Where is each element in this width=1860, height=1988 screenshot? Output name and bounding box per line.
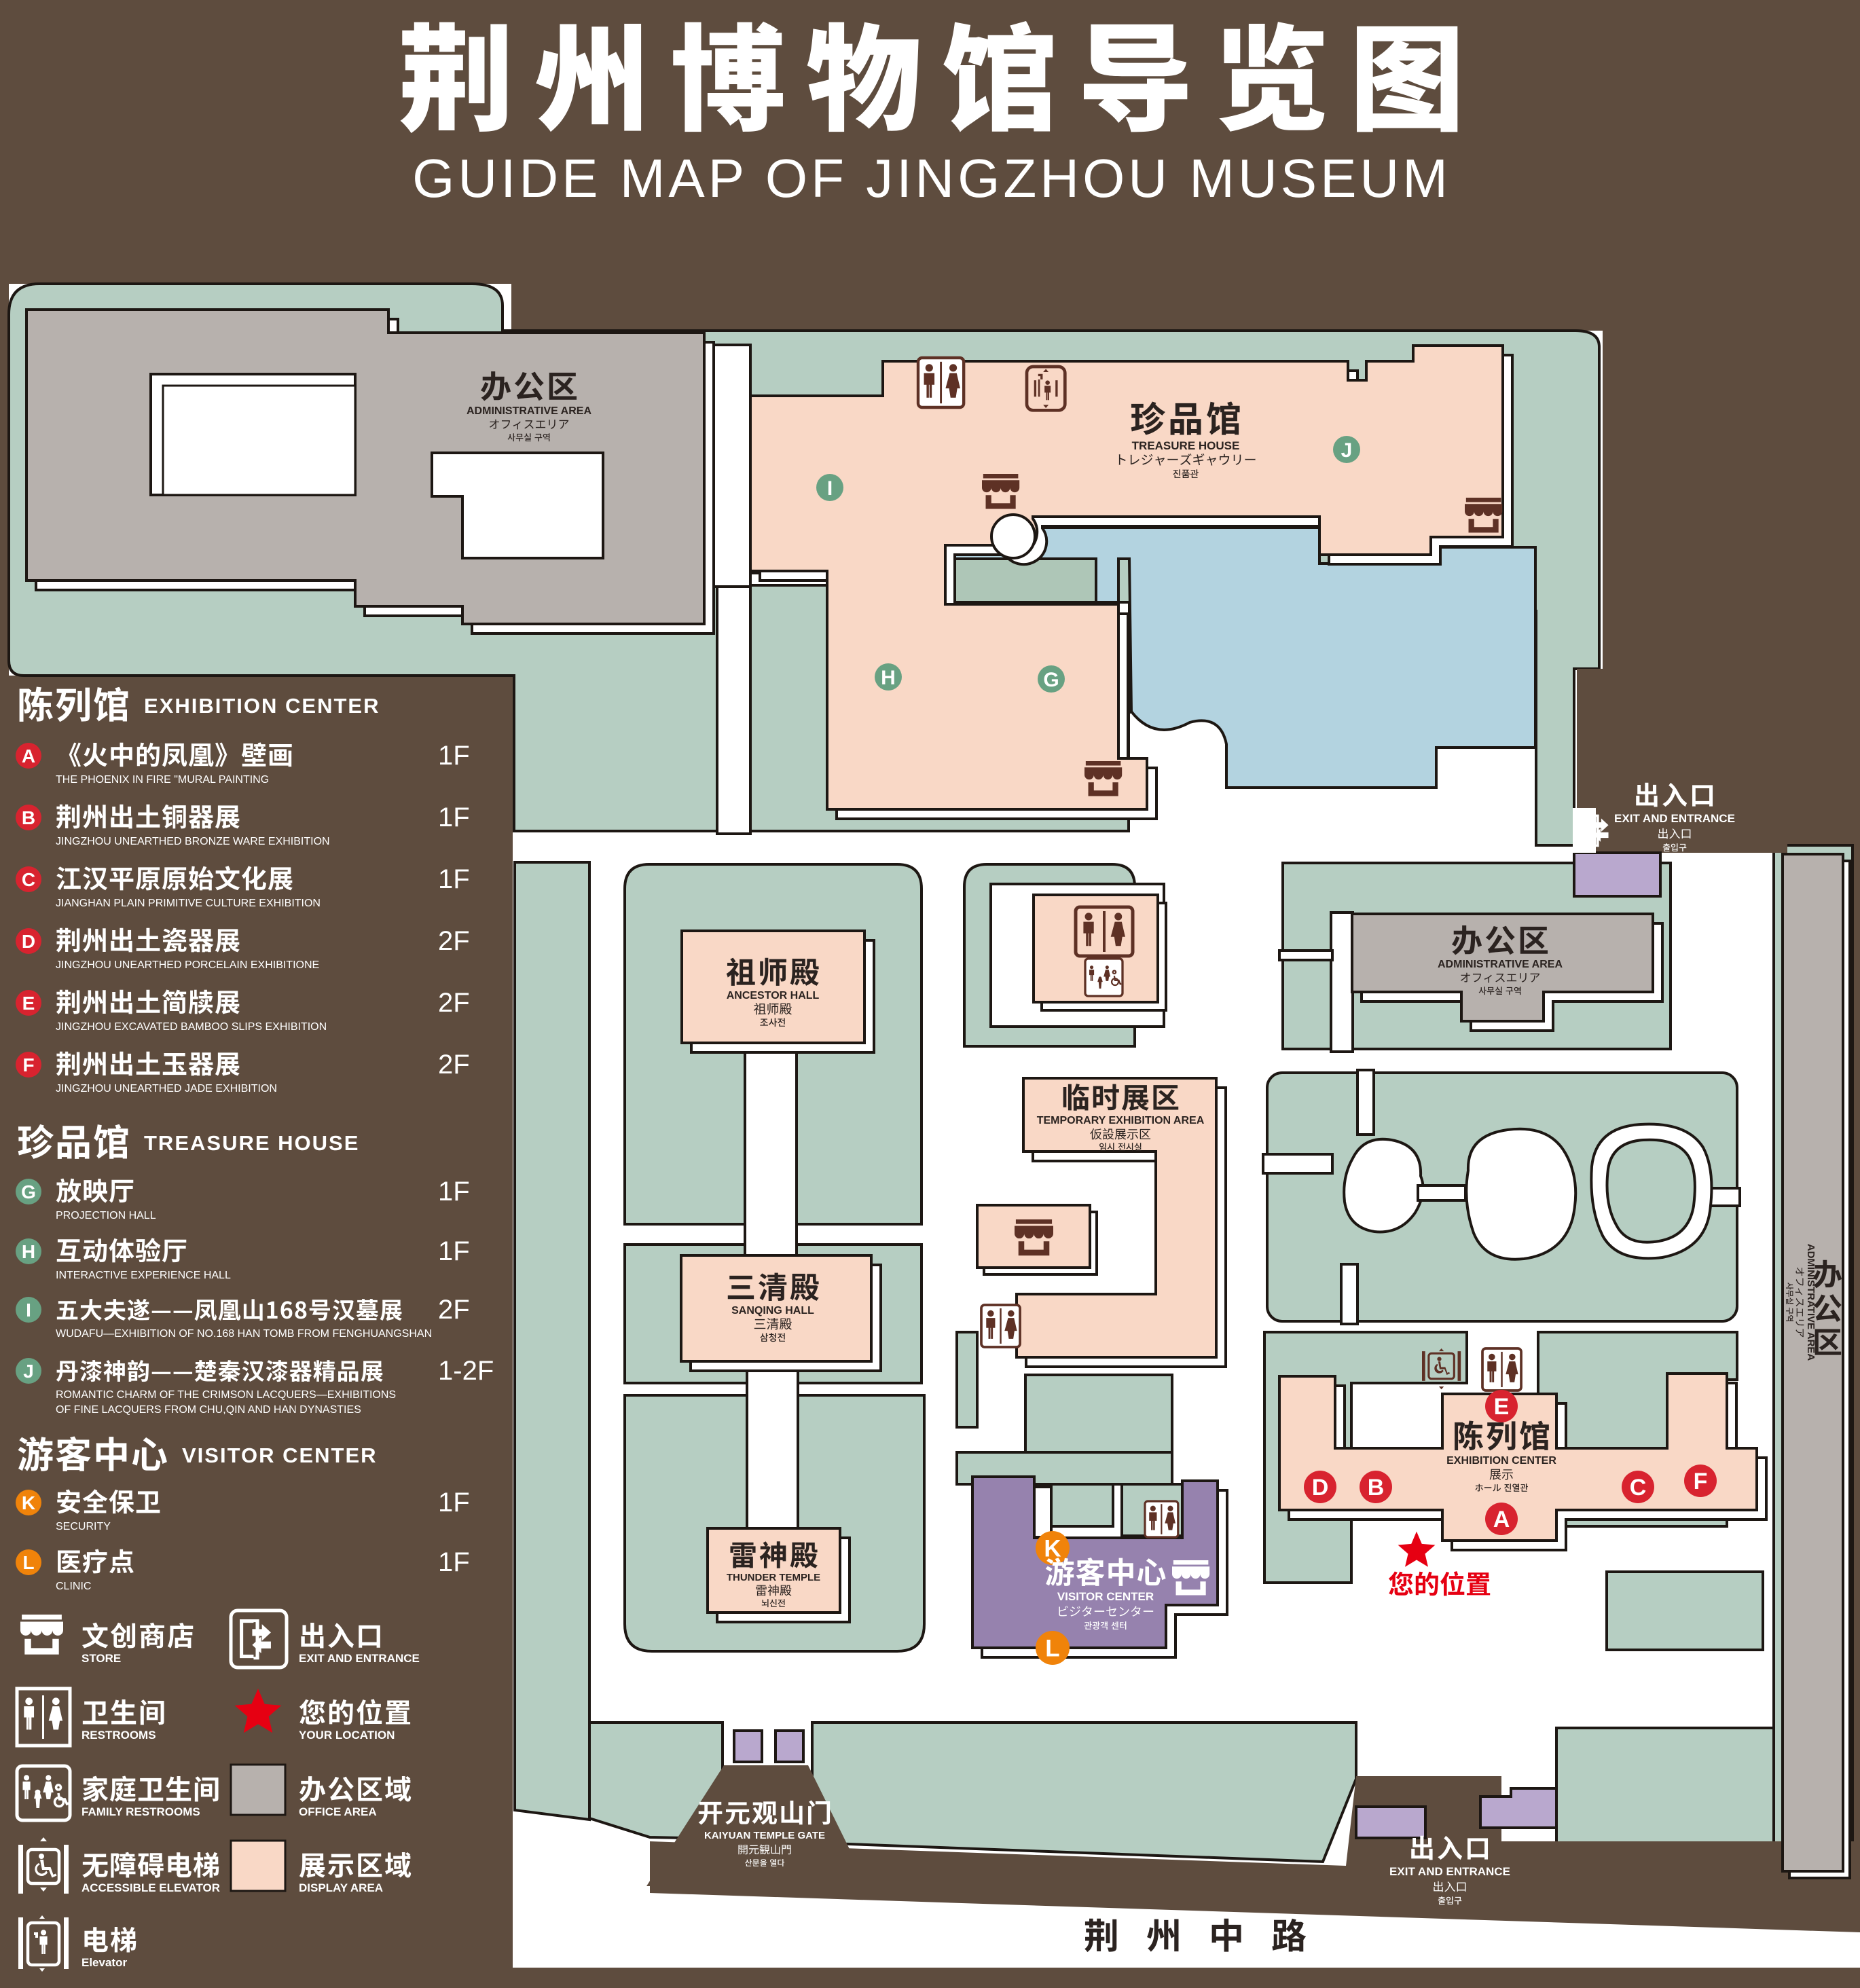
svg-text:C: C: [22, 869, 35, 890]
svg-text:B: B: [22, 807, 35, 828]
svg-text:ACCESSIBLE ELEVATOR: ACCESSIBLE ELEVATOR: [81, 1881, 220, 1894]
svg-text:2F: 2F: [438, 926, 470, 956]
svg-text:PROJECTION HALL: PROJECTION HALL: [56, 1210, 156, 1221]
svg-text:SANQING HALL: SANQING HALL: [731, 1305, 814, 1317]
svg-text:I: I: [827, 477, 833, 500]
svg-text:TREASURE HOUSE: TREASURE HOUSE: [144, 1131, 359, 1155]
svg-text:2F: 2F: [438, 988, 470, 1018]
svg-text:D: D: [22, 931, 35, 952]
svg-text:ROMANTIC CHARM OF THE CRIMSON: ROMANTIC CHARM OF THE CRIMSON LACQUERS—E…: [56, 1389, 396, 1401]
svg-text:A: A: [1493, 1507, 1510, 1532]
svg-text:EXIT AND ENTRANCE: EXIT AND ENTRANCE: [299, 1652, 420, 1665]
svg-text:K: K: [1044, 1536, 1061, 1562]
svg-text:VISITOR CENTER: VISITOR CENTER: [1057, 1590, 1154, 1603]
svg-text:OFFICE AREA: OFFICE AREA: [299, 1805, 377, 1818]
svg-text:SECURITY: SECURITY: [56, 1521, 111, 1532]
svg-text:KAIYUAN TEMPLE GATE: KAIYUAN TEMPLE GATE: [704, 1830, 825, 1841]
svg-text:L: L: [1045, 1636, 1059, 1662]
svg-text:1F: 1F: [438, 864, 470, 894]
svg-text:D: D: [1312, 1475, 1329, 1501]
svg-text:L: L: [22, 1552, 34, 1573]
svg-text:C: C: [1630, 1475, 1647, 1501]
svg-text:ADMINISTRATIVE AREA: ADMINISTRATIVE AREA: [1438, 959, 1563, 970]
svg-text:1F: 1F: [438, 1177, 470, 1207]
svg-text:TEMPORARY EXHIBITION AREA: TEMPORARY EXHIBITION AREA: [1037, 1115, 1205, 1126]
svg-text:1F: 1F: [438, 1488, 470, 1517]
svg-text:A: A: [22, 745, 35, 767]
svg-text:TREASURE HOUSE: TREASURE HOUSE: [1132, 439, 1240, 452]
svg-text:1F: 1F: [438, 1547, 470, 1577]
svg-text:GUIDE MAP OF JINGZHOU MUSEUM: GUIDE MAP OF JINGZHOU MUSEUM: [412, 148, 1451, 208]
svg-text:OF FINE LACQUERS FROM CHU,QIN: OF FINE LACQUERS FROM CHU,QIN AND HAN DY…: [56, 1404, 361, 1416]
svg-text:G: G: [1043, 669, 1059, 691]
svg-text:2F: 2F: [438, 1295, 470, 1325]
svg-text:JINGZHOU EXCAVATED BAMBOO SLIP: JINGZHOU EXCAVATED BAMBOO SLIPS EXHIBITI…: [56, 1021, 327, 1033]
svg-text:1F: 1F: [438, 1236, 470, 1266]
svg-text:DISPLAY AREA: DISPLAY AREA: [299, 1881, 383, 1894]
svg-text:1F: 1F: [438, 741, 470, 771]
svg-text:F: F: [1694, 1469, 1708, 1494]
svg-text:G: G: [21, 1181, 36, 1202]
svg-text:WUDAFU—EXHIBITION OF NO.168 HA: WUDAFU—EXHIBITION OF NO.168 HAN TOMB FRO…: [56, 1328, 432, 1340]
svg-text:ADMINISTRATIVE AREA: ADMINISTRATIVE AREA: [1805, 1244, 1817, 1361]
svg-text:E: E: [1494, 1394, 1510, 1420]
svg-text:EXIT AND ENTRANCE: EXIT AND ENTRANCE: [1614, 812, 1735, 825]
svg-text:YOUR LOCATION: YOUR LOCATION: [299, 1729, 395, 1742]
svg-text:B: B: [1368, 1475, 1385, 1501]
svg-text:ANCESTOR HALL: ANCESTOR HALL: [727, 990, 820, 1001]
svg-text:EXHIBITION CENTER: EXHIBITION CENTER: [1446, 1455, 1556, 1467]
svg-text:FAMILY RESTROOMS: FAMILY RESTROOMS: [81, 1805, 200, 1818]
svg-text:JINGZHOU UNEARTHED BRONZE WARE: JINGZHOU UNEARTHED BRONZE WARE EXHIBITIO…: [56, 836, 330, 847]
svg-text:STORE: STORE: [81, 1652, 121, 1665]
svg-text:VISITOR CENTER: VISITOR CENTER: [182, 1443, 378, 1467]
svg-text:J: J: [23, 1361, 34, 1382]
svg-text:EXHIBITION CENTER: EXHIBITION CENTER: [144, 694, 380, 718]
svg-text:2F: 2F: [438, 1050, 470, 1080]
svg-text:CLINIC: CLINIC: [56, 1581, 91, 1592]
svg-text:K: K: [22, 1492, 35, 1513]
svg-text:THUNDER TEMPLE: THUNDER TEMPLE: [727, 1572, 820, 1583]
svg-text:INTERACTIVE EXPERIENCE HALL: INTERACTIVE EXPERIENCE HALL: [56, 1270, 231, 1281]
svg-text:ADMINISTRATIVE AREA: ADMINISTRATIVE AREA: [467, 405, 591, 417]
svg-text:1-2F: 1-2F: [438, 1356, 494, 1386]
svg-text:I: I: [26, 1300, 31, 1321]
svg-text:1F: 1F: [438, 803, 470, 832]
svg-text:RESTROOMS: RESTROOMS: [81, 1729, 156, 1742]
svg-text:H: H: [22, 1241, 35, 1262]
svg-text:EXIT AND ENTRANCE: EXIT AND ENTRANCE: [1389, 1865, 1510, 1878]
svg-text:F: F: [22, 1054, 34, 1075]
svg-text:JIANGHAN PLAIN PRIMITIVE CULTU: JIANGHAN PLAIN PRIMITIVE CULTURE EXHIBIT…: [56, 898, 321, 909]
svg-text:E: E: [22, 993, 35, 1014]
svg-text:JINGZHOU UNEARTHED JADE EXHIBI: JINGZHOU UNEARTHED JADE EXHIBITION: [56, 1083, 277, 1094]
svg-text:JINGZHOU UNEARTHED PORCELAIN E: JINGZHOU UNEARTHED PORCELAIN EXHIBITIONE: [56, 959, 319, 971]
svg-text:J: J: [1341, 439, 1353, 462]
svg-text:THE PHOENIX IN FIRE "MURAL PAI: THE PHOENIX IN FIRE "MURAL PAINTING: [56, 774, 269, 786]
svg-text:Elevator: Elevator: [81, 1956, 127, 1969]
svg-text:H: H: [881, 667, 896, 689]
